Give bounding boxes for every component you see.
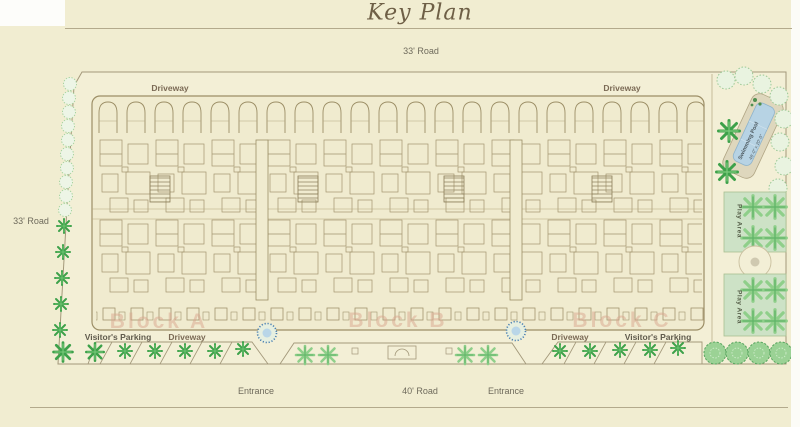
play-area-label-bottom: Play Area <box>736 290 743 324</box>
key-plan-page: Key Plan 33' Road 33' Road 40' Road Entr… <box>0 0 800 427</box>
title-divider <box>65 28 792 29</box>
fountain-icon <box>507 322 526 341</box>
building-footprint <box>92 96 704 330</box>
bottom-divider <box>30 407 788 408</box>
driveway-label-bottom-right: Driveway <box>551 332 588 342</box>
right-blank-strip <box>791 0 800 427</box>
block-a-label: Block A <box>110 310 208 334</box>
driveway-label-top-right: Driveway <box>603 83 640 93</box>
entrance-label-left: Entrance <box>238 386 274 396</box>
plaza-circle <box>739 246 771 278</box>
play-area-top <box>724 192 786 252</box>
top-left-blank <box>0 0 65 26</box>
play-area-bottom <box>724 274 786 336</box>
road-label-top: 33' Road <box>403 46 439 56</box>
site-plan-drawing <box>0 0 800 427</box>
fountain-icon <box>258 324 277 343</box>
road-label-left: 33' Road <box>13 216 49 226</box>
play-area-label-top: Play Area <box>736 204 743 238</box>
road-label-bottom: 40' Road <box>402 386 438 396</box>
driveway-label-top-left: Driveway <box>151 83 188 93</box>
block-c-label: Block C <box>572 309 671 333</box>
visitors-parking-label-right: Visitor's Parking <box>625 332 692 342</box>
entrance-label-right: Entrance <box>488 386 524 396</box>
block-b-label: Block B <box>348 309 447 333</box>
page-title: Key Plan <box>367 1 472 26</box>
